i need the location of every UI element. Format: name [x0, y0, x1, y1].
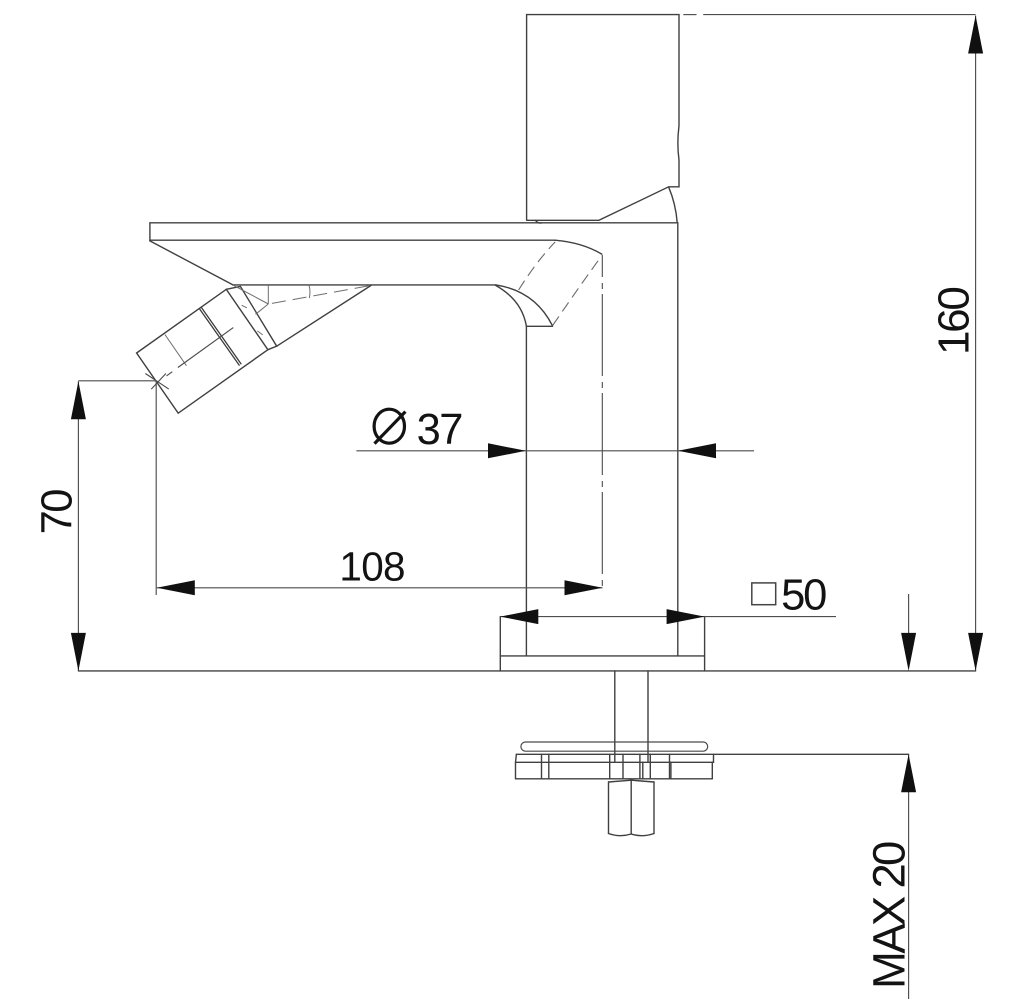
svg-text:108: 108 [339, 544, 404, 590]
svg-text:160: 160 [930, 288, 979, 355]
svg-text:50: 50 [781, 572, 826, 620]
svg-text:37: 37 [417, 406, 462, 454]
svg-text:MAX 20: MAX 20 [864, 842, 915, 989]
svg-text:70: 70 [33, 490, 81, 535]
